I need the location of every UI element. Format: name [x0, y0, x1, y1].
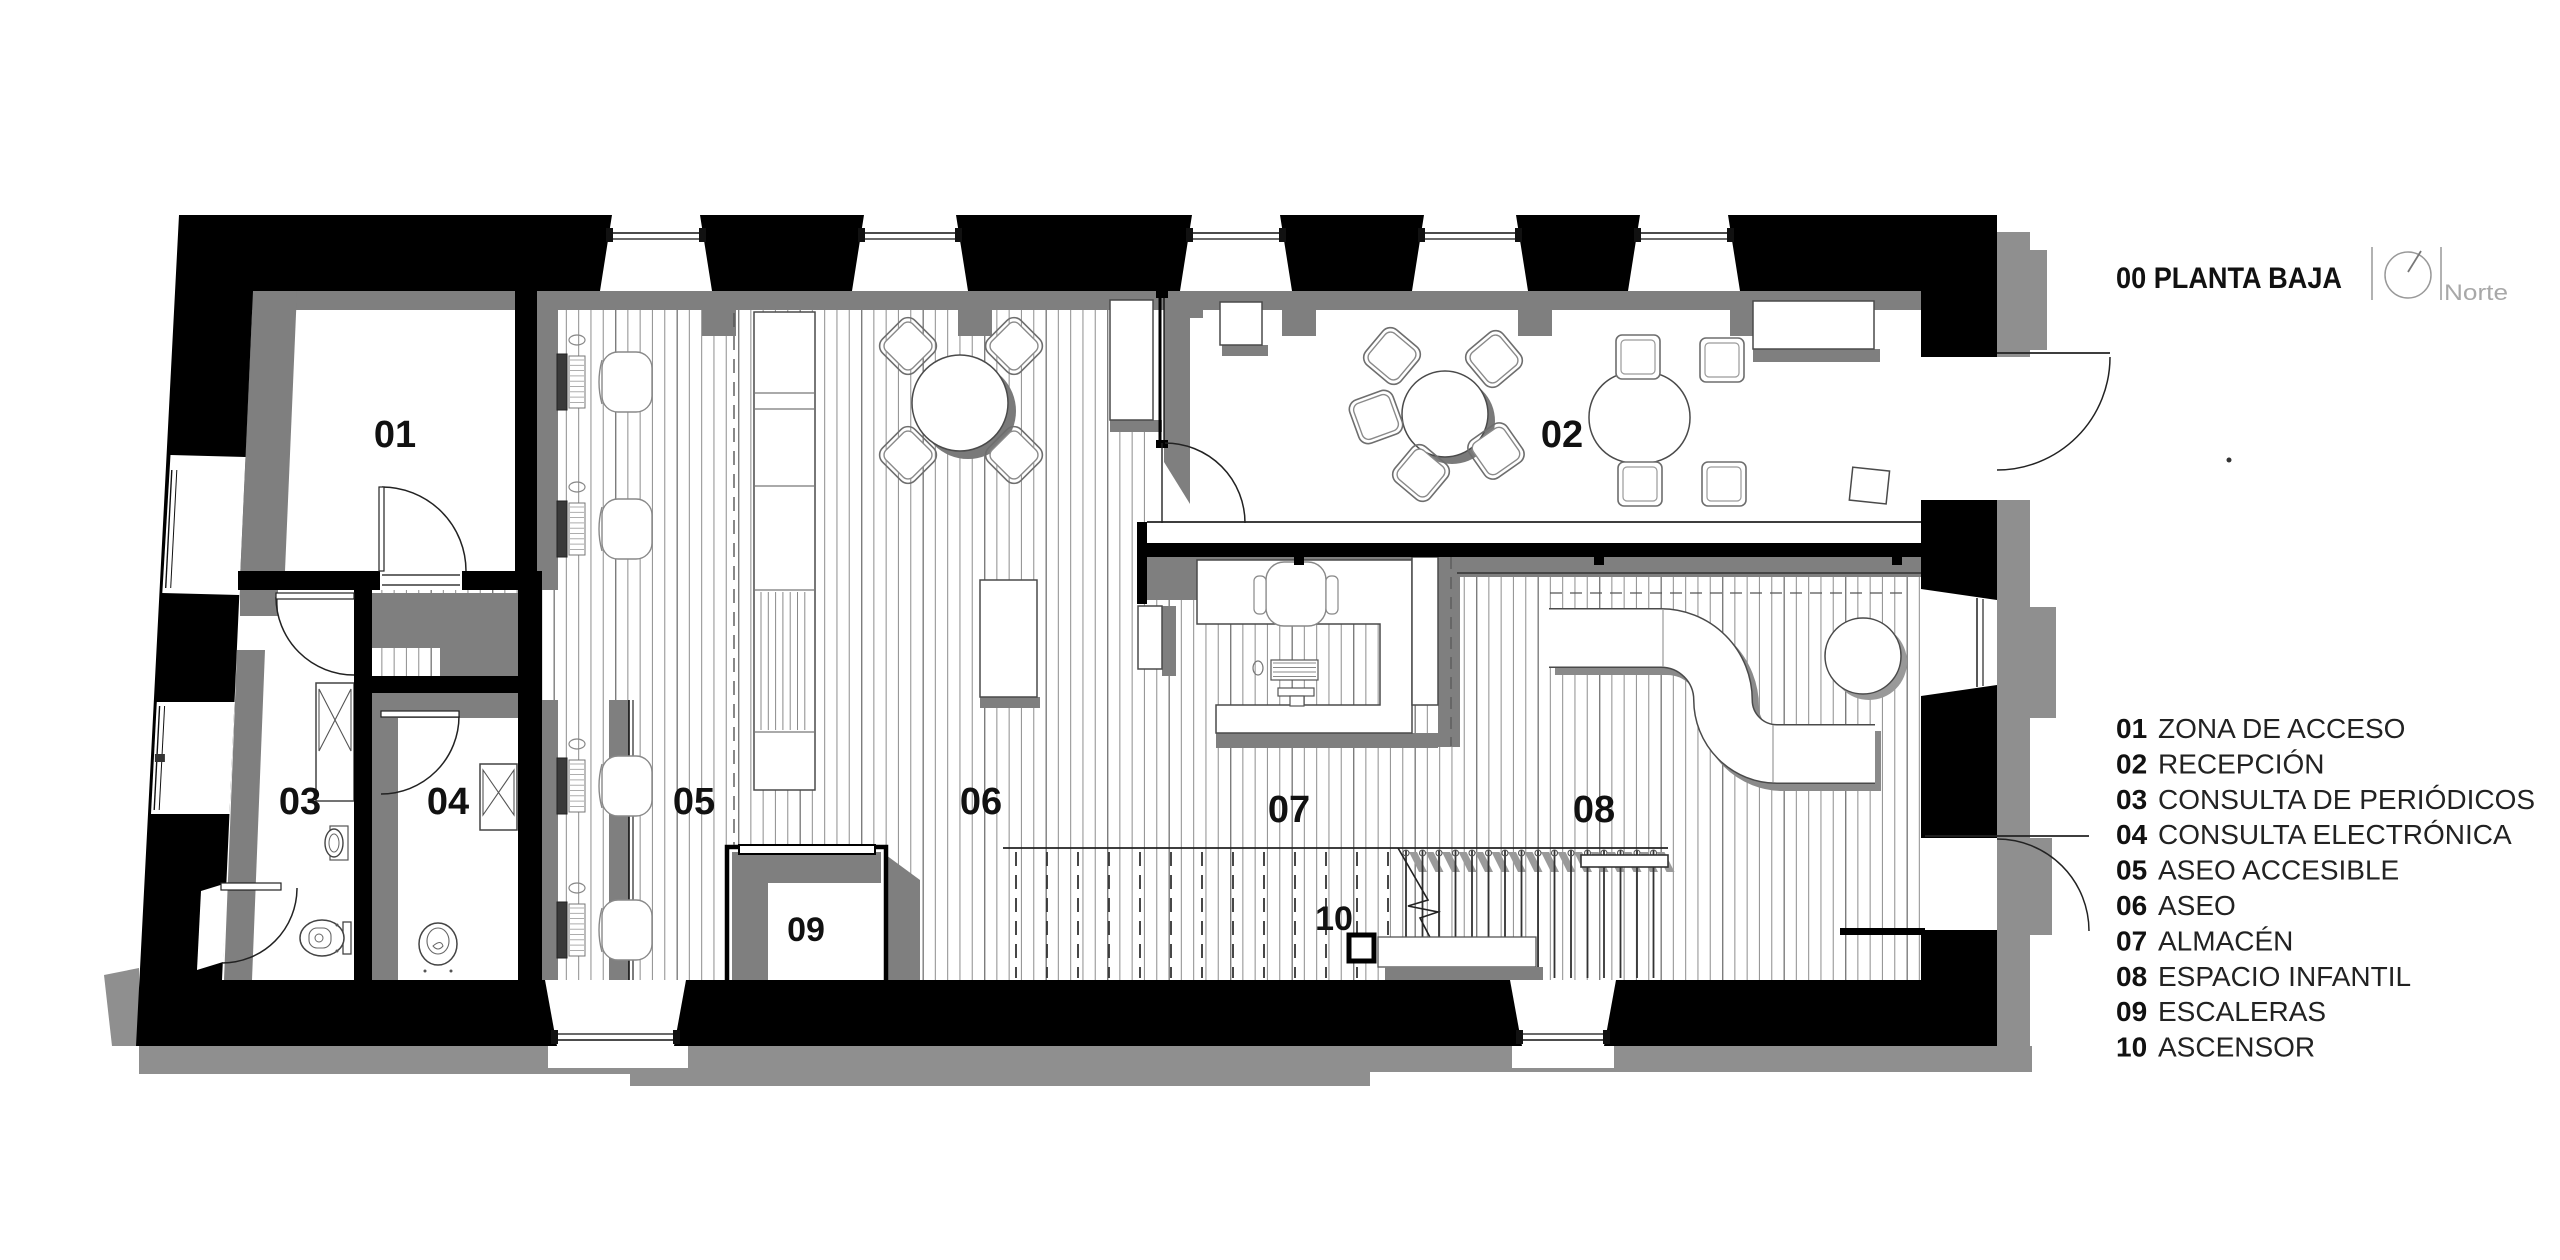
svg-text:ALMACÉN: ALMACÉN — [2158, 925, 2293, 956]
svg-text:03: 03 — [279, 781, 321, 823]
svg-text:03: 03 — [2116, 784, 2147, 815]
svg-text:08: 08 — [2116, 961, 2147, 992]
svg-text:06: 06 — [2116, 890, 2147, 921]
svg-text:CONSULTA ELECTRÓNICA: CONSULTA ELECTRÓNICA — [2158, 819, 2512, 850]
svg-text:ESPACIO INFANTIL: ESPACIO INFANTIL — [2158, 961, 2411, 992]
svg-text:01: 01 — [374, 414, 416, 456]
svg-text:05: 05 — [2116, 855, 2147, 886]
svg-text:02: 02 — [2116, 748, 2147, 779]
svg-text:RECEPCIÓN: RECEPCIÓN — [2158, 748, 2324, 779]
svg-text:05: 05 — [673, 781, 715, 823]
svg-text:09: 09 — [787, 911, 825, 949]
svg-text:07: 07 — [1268, 789, 1310, 831]
svg-text:ESCALERAS: ESCALERAS — [2158, 996, 2326, 1027]
svg-text:10: 10 — [1315, 900, 1353, 938]
svg-text:ASEO ACCESIBLE: ASEO ACCESIBLE — [2158, 855, 2399, 886]
svg-text:10: 10 — [2116, 1032, 2147, 1063]
svg-text:ZONA DE ACCESO: ZONA DE ACCESO — [2158, 713, 2405, 744]
svg-text:ASEO: ASEO — [2158, 890, 2236, 921]
svg-text:09: 09 — [2116, 996, 2147, 1027]
svg-text:Norte: Norte — [2444, 280, 2508, 305]
svg-text:01: 01 — [2116, 713, 2147, 744]
svg-text:06: 06 — [960, 781, 1002, 823]
svg-text:00 PLANTA BAJA: 00 PLANTA BAJA — [2116, 262, 2342, 295]
svg-text:04: 04 — [2116, 819, 2148, 850]
svg-text:CONSULTA DE PERIÓDICOS: CONSULTA DE PERIÓDICOS — [2158, 784, 2535, 815]
svg-text:08: 08 — [1573, 789, 1615, 831]
svg-text:02: 02 — [1541, 414, 1583, 456]
svg-text:ASCENSOR: ASCENSOR — [2158, 1032, 2315, 1063]
svg-text:04: 04 — [427, 781, 469, 823]
svg-text:07: 07 — [2116, 925, 2147, 956]
